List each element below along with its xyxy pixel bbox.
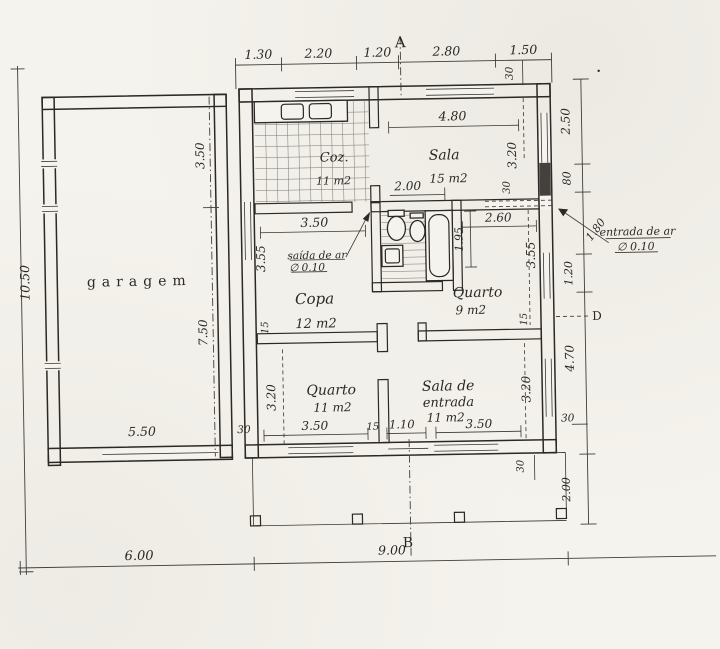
dim-front-door: 1.10 — [389, 417, 415, 431]
dim-porch-wall: 30 — [515, 459, 526, 473]
dim-right-80: 80 — [560, 171, 573, 185]
dim-sala-width: 4.80 — [437, 108, 466, 124]
dim-right-30: 30 — [561, 412, 575, 424]
kitchen-sink-counter — [254, 100, 347, 123]
bidet-icon — [410, 220, 425, 241]
scanned-blueprint-sheet: A B D 1.30 2.20 1.20 2.80 1.50 30 2.50 8… — [0, 0, 720, 649]
dim-garage-lower: 7.50 — [196, 319, 210, 346]
dim-garage-upper: 3.50 — [193, 142, 207, 169]
dim-top-3: 1.20 — [363, 44, 391, 59]
dim-sala-height: 3.20 — [505, 141, 519, 168]
room-label-coz: Coz. — [320, 150, 349, 165]
dim-quarto11-width: 3.50 — [301, 419, 328, 433]
section-label-a: A — [394, 33, 406, 51]
dim-right-470: 4.70 — [562, 345, 576, 373]
room-label-copa: Copa — [295, 289, 334, 308]
dim-top-5: 1.50 — [509, 42, 537, 57]
dim-right-200: 2.00 — [560, 477, 573, 503]
annotation-air-outlet: saída de ar — [287, 249, 347, 262]
porch-column — [352, 514, 362, 524]
dim-top-1: 1.30 — [244, 46, 272, 61]
room-area-entrada: 11 m2 — [427, 410, 465, 425]
dim-quarto11-wall: 15 — [366, 422, 379, 433]
dim-sala-opening: 2.00 — [393, 179, 421, 193]
dim-quarto9-width: 2.60 — [484, 210, 512, 224]
porch-column — [454, 512, 464, 522]
arrowhead — [558, 208, 568, 216]
dim-copa-height: 3.55 — [254, 245, 268, 272]
room-label-quarto11: Quarto — [306, 382, 356, 399]
dimension-lines — [9, 50, 716, 575]
room-area-sala: 15 m2 — [429, 171, 467, 186]
dim-entrada-width: 3.50 — [465, 417, 492, 431]
room-label-sala: Sala — [429, 147, 460, 164]
bidet-cistern — [410, 213, 423, 218]
dim-garage-gap: 30 — [237, 424, 251, 436]
room-area-coz: 11 m2 — [316, 174, 351, 188]
floor-plan-drawing: A B D 1.30 2.20 1.20 2.80 1.50 30 2.50 8… — [0, 0, 720, 649]
dim-garage-width: 5.50 — [128, 424, 156, 439]
annotation-air-inlet: entrada de ar — [599, 224, 676, 238]
dim-right-250: 2.50 — [558, 108, 572, 136]
dim-entrada-height: 3.20 — [519, 375, 533, 402]
room-label-quarto9: Quarto — [453, 285, 503, 302]
room-label-entrada-1: Sala de — [422, 378, 475, 395]
dim-top-4: 2.80 — [431, 43, 460, 59]
room-label-entrada-2: entrada — [423, 395, 475, 411]
room-area-quarto9: 9 m2 — [455, 303, 486, 318]
arrowhead — [363, 212, 371, 222]
annotation-air-outlet-size: ∅ 0.10 — [289, 262, 325, 275]
dim-top-wall: 30 — [504, 66, 516, 80]
toilet-icon — [387, 216, 405, 240]
dim-quarto11-height: 3.20 — [264, 384, 278, 411]
dim-quarto9-wall: 15 — [519, 313, 530, 326]
room-label-garagem: garagem — [87, 273, 192, 291]
dim-bottom-garage: 6.00 — [124, 549, 153, 565]
toilet-cistern — [388, 210, 404, 216]
dim-sala-wall: 30 — [502, 180, 513, 194]
dim-quarto9-height: 3.55 — [524, 242, 538, 269]
annotation-air-inlet-size: ∅ 0.10 — [617, 240, 655, 254]
dim-copa-wall: 15 — [260, 321, 271, 334]
porch-column — [250, 516, 260, 526]
dim-top-2: 2.20 — [303, 45, 332, 61]
dim-bottom-house: 9.00 — [378, 542, 406, 557]
dim-quarto9-bath: 1.95 — [452, 227, 465, 252]
porch-column — [556, 508, 566, 518]
dim-left-height: 10.50 — [17, 265, 33, 301]
room-area-copa: 12 m2 — [295, 316, 337, 332]
dim-copa-width: 3.50 — [300, 215, 328, 230]
dim-right-120: 1.20 — [562, 261, 575, 286]
room-area-quarto11: 11 m2 — [313, 400, 351, 415]
section-label-d: D — [592, 309, 602, 323]
